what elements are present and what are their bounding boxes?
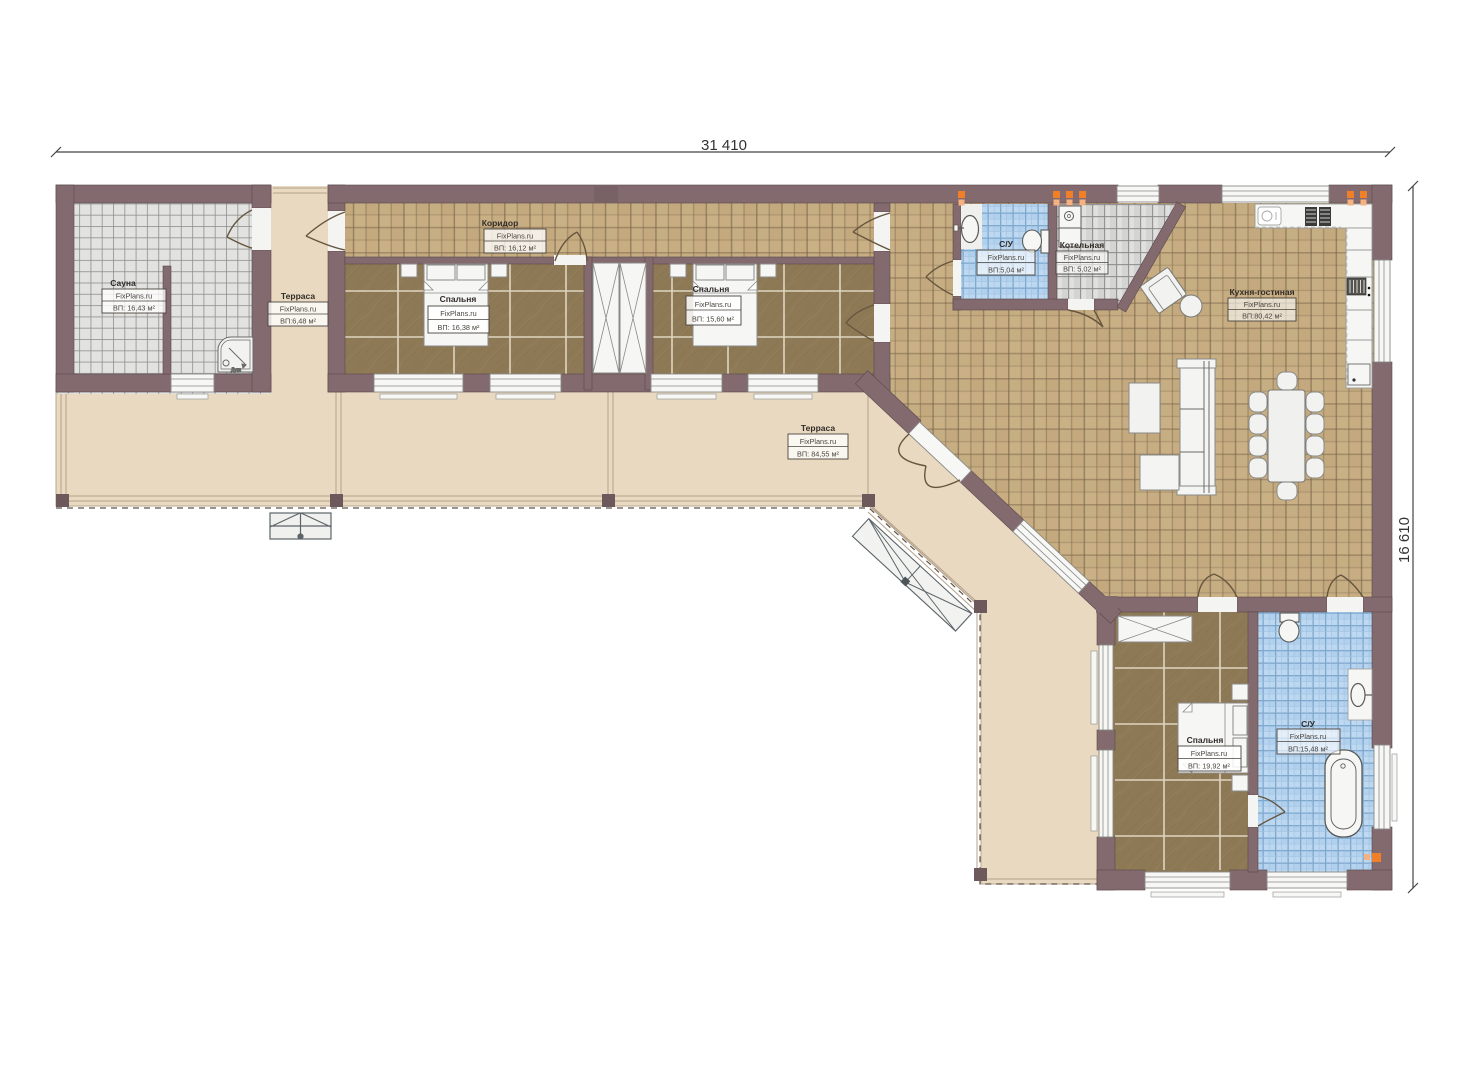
svg-text:Спальня: Спальня [693,284,730,294]
svg-text:ВП: 19,92 м²: ВП: 19,92 м² [1188,762,1230,771]
svg-text:Сауна: Сауна [110,278,136,288]
svg-text:Терраса: Терраса [281,291,315,301]
svg-text:FixPlans.ru: FixPlans.ru [116,292,153,301]
svg-text:16 610: 16 610 [1396,517,1413,563]
svg-text:ВП: 16,38 м²: ВП: 16,38 м² [438,323,480,332]
svg-text:Котельная: Котельная [1060,240,1105,250]
svg-text:Спальня: Спальня [1187,735,1224,745]
svg-text:FixPlans.ru: FixPlans.ru [1064,253,1101,262]
svg-text:Коридор: Коридор [482,218,519,228]
svg-text:Терраса: Терраса [801,423,835,433]
svg-text:31 410: 31 410 [701,137,747,154]
svg-text:FixPlans.ru: FixPlans.ru [695,300,732,309]
svg-text:ВП: 16,12 м²: ВП: 16,12 м² [494,244,536,253]
svg-text:FixPlans.ru: FixPlans.ru [800,437,837,446]
svg-text:FixPlans.ru: FixPlans.ru [1191,749,1228,758]
svg-text:Кухня-гостиная: Кухня-гостиная [1229,287,1294,297]
svg-text:FixPlans.ru: FixPlans.ru [280,305,317,314]
svg-text:FixPlans.ru: FixPlans.ru [440,309,477,318]
svg-text:ВП: 84,55 м²: ВП: 84,55 м² [797,450,839,459]
svg-text:FixPlans.ru: FixPlans.ru [988,253,1025,262]
svg-text:ВП:6,48 м²: ВП:6,48 м² [280,317,316,326]
svg-text:FixPlans.ru: FixPlans.ru [497,232,534,241]
svg-text:ВП:80,42 м²: ВП:80,42 м² [1242,312,1282,321]
svg-text:FixPlans.ru: FixPlans.ru [1244,300,1281,309]
svg-text:Спальня: Спальня [440,294,477,304]
svg-text:ВП:15,48 м²: ВП:15,48 м² [1288,745,1328,754]
svg-text:Душ: Душ [231,368,241,374]
svg-text:ВП: 16,43 м²: ВП: 16,43 м² [113,304,155,313]
svg-text:FixPlans.ru: FixPlans.ru [1290,732,1327,741]
svg-text:С/У: С/У [1301,719,1316,729]
svg-text:ВП:5,04 м²: ВП:5,04 м² [988,266,1024,275]
svg-text:С/У: С/У [999,239,1014,249]
svg-text:ВП: 15,60 м²: ВП: 15,60 м² [692,315,734,324]
svg-text:ВП: 5,02 м²: ВП: 5,02 м² [1063,265,1101,274]
